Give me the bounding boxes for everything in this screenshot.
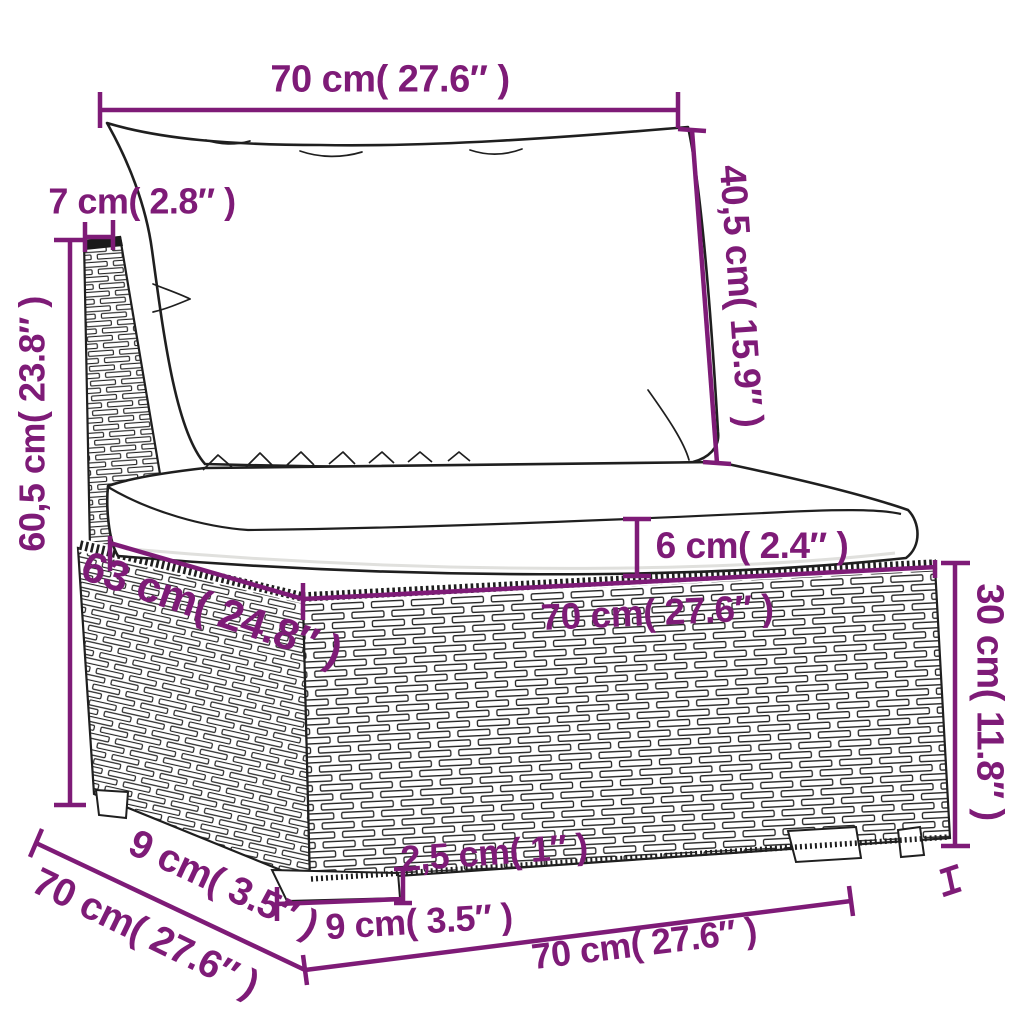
- label-total-width: 70 cm( 27.6″ ): [529, 909, 759, 977]
- sofa-line-art: [78, 123, 950, 901]
- left-side-leg: [96, 790, 128, 818]
- label-back-cushion-width: 70 cm( 27.6″ ): [270, 58, 509, 100]
- label-back-post-depth: 7 cm( 2.8″ ): [48, 181, 235, 222]
- label-back-cushion-height: 40,5 cm( 15.9″ ): [712, 164, 771, 429]
- product-dimension-diagram: 70 cm( 27.6″ ) 7 cm( 2.8″ ) 40,5 cm( 15.…: [0, 0, 1024, 1024]
- label-base-height: 30 cm( 11.8″ ): [969, 583, 1011, 820]
- dim-line-leg-height-right: [940, 866, 961, 895]
- label-seat-cushion-thickness: 6 cm( 2.4″ ): [656, 525, 849, 566]
- diagram-canvas: 70 cm( 27.6″ ) 7 cm( 2.8″ ) 40,5 cm( 15.…: [0, 0, 1024, 1024]
- back-cushion: [107, 123, 718, 468]
- dim-line-total-height: [54, 240, 86, 805]
- label-total-height: 60,5 cm( 23.8″ ): [12, 296, 53, 551]
